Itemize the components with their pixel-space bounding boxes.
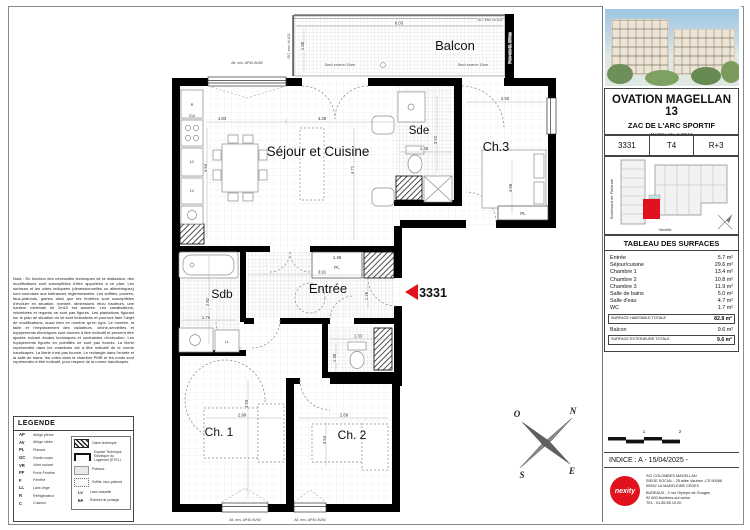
surface-row: WC1.7 m² <box>610 305 733 312</box>
legend-label: Soffite, faux-plafond <box>92 481 122 485</box>
compass-rose-icon: O N S E <box>514 406 577 480</box>
dim: 1.48 <box>333 255 342 260</box>
legend-abbr: AV <box>19 440 33 445</box>
annotation-gc: GC: env. ht.102 <box>287 34 291 59</box>
balcony-label: Balcon <box>610 327 626 333</box>
surface-value: 13.4 m² <box>715 269 733 276</box>
dim: 2.99 <box>238 413 247 418</box>
surface-label: Chambre 1 <box>610 269 637 276</box>
surface-table-title: TABLEAU DES SURFACES <box>605 236 738 251</box>
exterior-total-value: 9.6 m² <box>717 337 732 343</box>
room-label-ch2: Ch. 2 <box>338 428 367 442</box>
legend-label: Placard <box>33 448 45 452</box>
surface-value: 29.6 m² <box>715 262 733 269</box>
surface-total-row: SURFACE HABITABLE TOTALE 82.8 m² <box>608 314 735 324</box>
legend-label: Poteaux <box>92 468 104 472</box>
surface-label: Salle d'eau <box>610 298 637 305</box>
title-block-panel: OVATION MAGELLAN 13 ZAC DE L'ARC SPORTIF… <box>602 6 741 522</box>
lot-floor: R+3 <box>694 136 738 155</box>
dim: 1.26 <box>364 291 369 300</box>
keyplan-street-bottom: Venelle <box>658 227 672 232</box>
dim: 1.83 <box>218 116 227 121</box>
dim: 2.50 <box>501 96 510 101</box>
appliance-cui: CUI <box>189 114 195 118</box>
room-label-ch1: Ch. 1 <box>205 425 234 439</box>
appliance-lc: LC <box>190 160 195 164</box>
plan-notes: Nota : En fonction des nécessités techni… <box>13 277 134 407</box>
appliance-ll: LL <box>225 340 229 344</box>
room-label-sde: Sde <box>409 125 429 137</box>
company-line: TEL : 01.85.55.10.00 <box>646 501 722 506</box>
dim: 4.56 <box>508 183 513 192</box>
surface-total-value: 82.8 m² <box>714 316 732 322</box>
keyplan-street-left: Boulevard de Finlande <box>609 178 614 219</box>
legend-label: Robinet de puisage <box>90 499 119 503</box>
balcony <box>293 14 514 80</box>
legend-label: Gaine technique <box>92 442 117 446</box>
annotation-seuil: Seuil environ 15cm <box>325 63 356 67</box>
dim: 2.82 <box>205 297 210 306</box>
project-photo <box>605 9 739 86</box>
legend-title: LEGENDE <box>14 417 133 431</box>
surface-label: Salle de bains <box>610 291 644 298</box>
keyplan-compass-icon <box>718 215 732 229</box>
legend-label: Lave-linge <box>33 486 50 490</box>
nexity-logo: nexity <box>610 476 640 506</box>
room-label-ch3: Ch.3 <box>483 140 509 154</box>
surface-label: Chambre 2 <box>610 277 637 284</box>
dim: 3.54 <box>322 435 327 444</box>
dim: 2.69 <box>340 413 349 418</box>
surface-label: Chambre 3 <box>610 284 637 291</box>
surface-row: Chambre 210.8 m² <box>610 277 733 284</box>
legend-label: Lave vaisselle <box>90 491 111 495</box>
compass-o: O <box>514 409 521 419</box>
legend-label: Réfrigérateur <box>33 494 54 498</box>
surface-value: 11.9 m² <box>715 284 733 291</box>
room-label-sejour: Séjour et Cuisine <box>267 144 370 159</box>
dim: 3.91 <box>318 270 327 275</box>
annotation-sill: All. env. AP40 AV60 <box>231 61 262 65</box>
legend-abbr: LV <box>74 490 87 495</box>
appliance-lv: LV <box>190 189 195 193</box>
closet-label-entree: PL <box>334 265 340 270</box>
legend-label: Volet roulant <box>33 463 53 467</box>
dim: 4.93 <box>244 399 249 408</box>
annotation-sill: All. env. AP40 AV60 <box>229 518 260 522</box>
dim: 3.52 <box>433 135 438 144</box>
legend-abbr: F <box>19 478 33 483</box>
dim: 1.48 <box>420 146 429 151</box>
legend: LEGENDE APAllège pleine AVAllège vitrée … <box>13 416 134 522</box>
surface-row: Chambre 113.4 m² <box>610 269 733 276</box>
scale-tick-2: 2 <box>679 429 682 434</box>
legend-abbr: PL <box>19 447 33 452</box>
surface-value: 1.7 m² <box>718 305 733 312</box>
annotation-gc: GC: env. ht.102 <box>478 18 503 22</box>
dim: 4.71 <box>350 165 355 174</box>
lot-number: 3331 <box>605 136 650 155</box>
legend-abbr: LL <box>19 485 33 490</box>
revision-index: INDICE : A - 15/04/2025 - <box>604 452 739 468</box>
surface-row: Salle d'eau4.7 m² <box>610 298 733 305</box>
legend-label: Cuisson <box>33 501 46 505</box>
dim: 8.03 <box>395 21 404 26</box>
dim: 1.76 <box>202 315 211 320</box>
balcony-row: Balcon 9.6 m² <box>605 325 738 334</box>
company-line: SIEGE SOCIAL : 25 allée Vauban -CS 50068 <box>646 479 722 484</box>
legend-abbr: PF <box>19 470 33 475</box>
company-block: nexity SCI COLOMBES MAGELLAN SIEGE SOCIA… <box>604 468 739 522</box>
legend-label: Allège vitrée <box>33 440 53 444</box>
surface-row: Séjour/cuisine29.6 m² <box>610 262 733 269</box>
dim: 1.33 <box>354 334 363 339</box>
annotation-seuil: Seuil environ 15cm <box>458 63 489 67</box>
surface-label: Séjour/cuisine <box>610 262 644 269</box>
project-title-block: OVATION MAGELLAN 13 ZAC DE L'ARC SPORTIF… <box>604 88 739 135</box>
keyplan-terrace <box>649 195 660 199</box>
legend-label: Garde-corps <box>33 456 53 460</box>
poteau-icon <box>74 466 89 475</box>
surface-value: 5.0 m² <box>718 291 733 298</box>
legend-abbr: VR <box>19 463 33 468</box>
surface-table: TABLEAU DES SURFACES Entrée5.7 m² Séjour… <box>604 235 739 352</box>
surface-row: Entrée5.7 m² <box>610 255 733 262</box>
unit-marker-label: 3331 <box>419 286 447 300</box>
surface-value: 10.8 m² <box>715 277 733 284</box>
compass-n: N <box>569 406 577 416</box>
exterior-total-row: SURFACE EXTERIEURE TOTALE 9.6 m² <box>608 335 735 345</box>
dim: 4.39 <box>318 116 327 121</box>
lot-type: T4 <box>650 136 695 155</box>
dim: 1.30 <box>332 353 337 362</box>
scale-bar: 1 2 <box>604 424 739 452</box>
room-label-sdb: Sdb <box>211 287 233 301</box>
dim: 1.60 <box>300 41 305 50</box>
surface-value: 4.7 m² <box>718 298 733 305</box>
legend-abbr: C <box>19 501 33 506</box>
surface-row: Chambre 311.9 m² <box>610 284 733 291</box>
scale-tick-1: 1 <box>643 429 646 434</box>
legend-abbr: RP <box>74 498 87 503</box>
surface-value: 5.7 m² <box>718 255 733 262</box>
surface-total-label: SURFACE HABITABLE TOTALE <box>611 316 666 322</box>
gaine-technique-icon <box>74 439 89 448</box>
key-plan: Boulevard de Finlande Venelle <box>604 156 739 235</box>
legend-label: Allège pleine <box>33 433 54 437</box>
legend-symbol-column: Gaine technique Espace Technique Electri… <box>71 436 131 510</box>
exterior-total-label: SURFACE EXTERIEURE TOTALE <box>611 337 670 343</box>
room-label-entree: Entrée <box>309 281 347 296</box>
surface-label: WC <box>610 305 619 312</box>
legend-abbr: GC <box>19 455 33 460</box>
legend-abbr: R <box>19 493 33 498</box>
unit-pointer-icon <box>405 284 418 300</box>
balcony-value: 9.6 m² <box>718 327 733 333</box>
project-title: OVATION MAGELLAN 13 <box>605 94 738 118</box>
appliance-r: R <box>191 103 194 107</box>
lot-info-row: 3331 T4 R+3 <box>604 135 739 156</box>
surface-row: Salle de bains5.0 m² <box>610 291 733 298</box>
legend-abbr: AP <box>19 432 33 437</box>
closet-label-ch3: PL <box>520 211 526 216</box>
legend-label: Porte Fenêtre <box>33 471 55 475</box>
dim: 4.54 <box>203 163 208 172</box>
unit-marker: 3331 <box>405 284 447 300</box>
annotation-sill: All. env. AP40 AV60 <box>294 518 325 522</box>
compass-e: E <box>568 466 575 476</box>
legend-label: Espace Technique Electrique du Logement … <box>94 451 128 462</box>
surface-label: Entrée <box>610 255 626 262</box>
room-label-balcon: Balcon <box>435 38 475 53</box>
annotation-parevue: Pare-vue ht. 180cm <box>508 32 512 63</box>
soffite-icon <box>74 478 89 487</box>
compass-s: S <box>519 470 524 480</box>
etel-icon <box>74 453 91 461</box>
keyplan-unit-highlight <box>643 199 660 219</box>
project-subtitle: ZAC DE L'ARC SPORTIF <box>605 121 738 130</box>
legend-label: Fenêtre <box>33 478 45 482</box>
